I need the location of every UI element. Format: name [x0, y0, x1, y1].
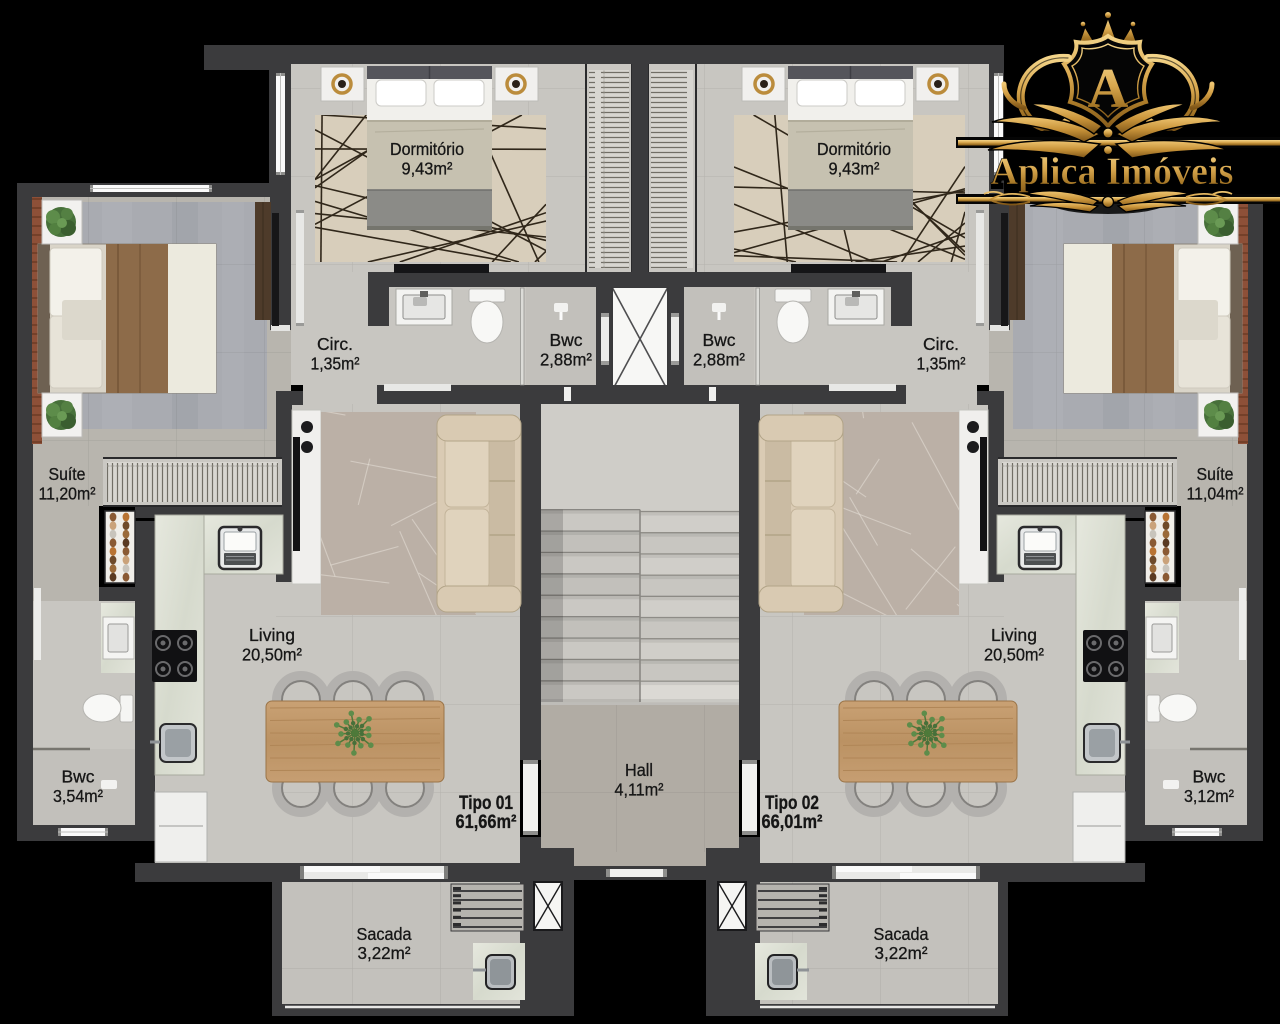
svg-text:4,11m²: 4,11m² — [615, 780, 664, 800]
svg-text:Suíte: Suíte — [49, 464, 86, 484]
svg-text:9,43m²: 9,43m² — [402, 159, 453, 179]
svg-text:2,88m²: 2,88m² — [693, 350, 745, 370]
svg-text:Bwc: Bwc — [549, 330, 582, 350]
svg-text:2,88m²: 2,88m² — [540, 350, 592, 370]
svg-text:Hall: Hall — [625, 760, 653, 780]
svg-text:66,01m²: 66,01m² — [762, 812, 823, 833]
svg-text:20,50m²: 20,50m² — [242, 645, 302, 665]
svg-text:Suíte: Suíte — [1197, 464, 1234, 484]
svg-text:9,43m²: 9,43m² — [829, 159, 880, 179]
svg-text:11,04m²: 11,04m² — [1187, 484, 1244, 504]
svg-text:1,35m²: 1,35m² — [311, 354, 360, 374]
svg-text:Dormitório: Dormitório — [390, 139, 464, 159]
svg-text:11,20m²: 11,20m² — [39, 484, 96, 504]
svg-text:3,12m²: 3,12m² — [1184, 786, 1234, 806]
svg-text:3,22m²: 3,22m² — [358, 943, 411, 963]
svg-text:Living: Living — [991, 625, 1037, 645]
svg-text:Circ.: Circ. — [923, 334, 959, 354]
svg-text:Tipo 02: Tipo 02 — [765, 793, 819, 814]
svg-text:Bwc: Bwc — [702, 330, 735, 350]
svg-text:Circ.: Circ. — [317, 334, 353, 354]
svg-text:3,54m²: 3,54m² — [53, 786, 103, 806]
svg-text:3,22m²: 3,22m² — [875, 943, 928, 963]
svg-text:Sacada: Sacada — [357, 924, 412, 944]
svg-text:1,35m²: 1,35m² — [917, 354, 966, 374]
svg-text:A: A — [1088, 58, 1129, 120]
svg-text:61,66m²: 61,66m² — [456, 812, 517, 833]
svg-text:Tipo 01: Tipo 01 — [459, 793, 513, 814]
svg-text:Bwc: Bwc — [1192, 767, 1225, 787]
svg-text:Dormitório: Dormitório — [817, 139, 891, 159]
svg-text:Bwc: Bwc — [61, 767, 94, 787]
svg-text:20,50m²: 20,50m² — [984, 645, 1044, 665]
svg-text:Sacada: Sacada — [874, 924, 929, 944]
svg-text:Living: Living — [249, 625, 295, 645]
svg-text:Aplica Imóveis: Aplica Imóveis — [991, 150, 1234, 193]
